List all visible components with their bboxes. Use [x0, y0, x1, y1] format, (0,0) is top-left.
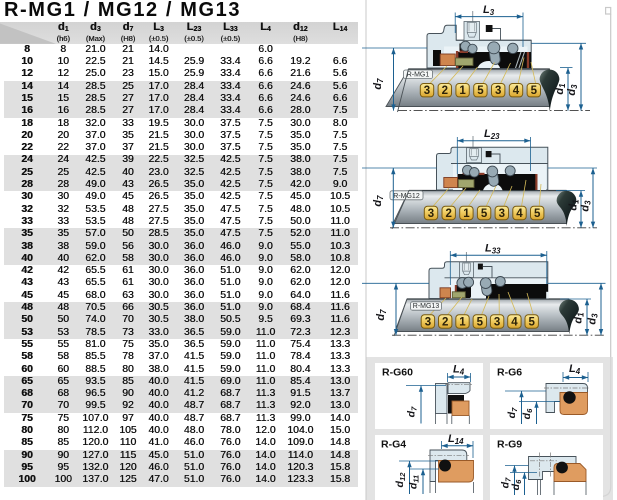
svg-text:5: 5: [528, 317, 535, 329]
svg-text:5: 5: [531, 85, 538, 97]
svg-text:2: 2: [445, 208, 451, 220]
svg-text:4: 4: [511, 317, 518, 329]
svg-text:2: 2: [442, 85, 448, 97]
svg-text:3: 3: [425, 317, 431, 329]
svg-text:2: 2: [442, 317, 448, 329]
svg-text:3: 3: [494, 317, 500, 329]
svg-text:R-G6: R-G6: [497, 367, 522, 379]
svg-text:5: 5: [481, 208, 488, 220]
svg-text:R-MG1: R-MG1: [407, 72, 430, 79]
svg-text:5: 5: [477, 317, 484, 329]
svg-text:R-MG13: R-MG13: [413, 303, 440, 310]
svg-text:4: 4: [513, 85, 520, 97]
svg-text:R-G9: R-G9: [497, 439, 522, 451]
svg-text:1: 1: [459, 85, 466, 97]
svg-text:1: 1: [459, 317, 466, 329]
svg-text:3: 3: [424, 85, 430, 97]
svg-text:5: 5: [477, 85, 484, 97]
svg-text:3: 3: [428, 208, 434, 220]
svg-text:1: 1: [463, 208, 470, 220]
svg-text:3: 3: [499, 208, 505, 220]
svg-text:4: 4: [516, 208, 523, 220]
svg-text:R-G4: R-G4: [381, 439, 406, 451]
svg-text:R-G60: R-G60: [382, 367, 413, 379]
svg-text:3: 3: [495, 85, 501, 97]
svg-text:5: 5: [534, 208, 541, 220]
